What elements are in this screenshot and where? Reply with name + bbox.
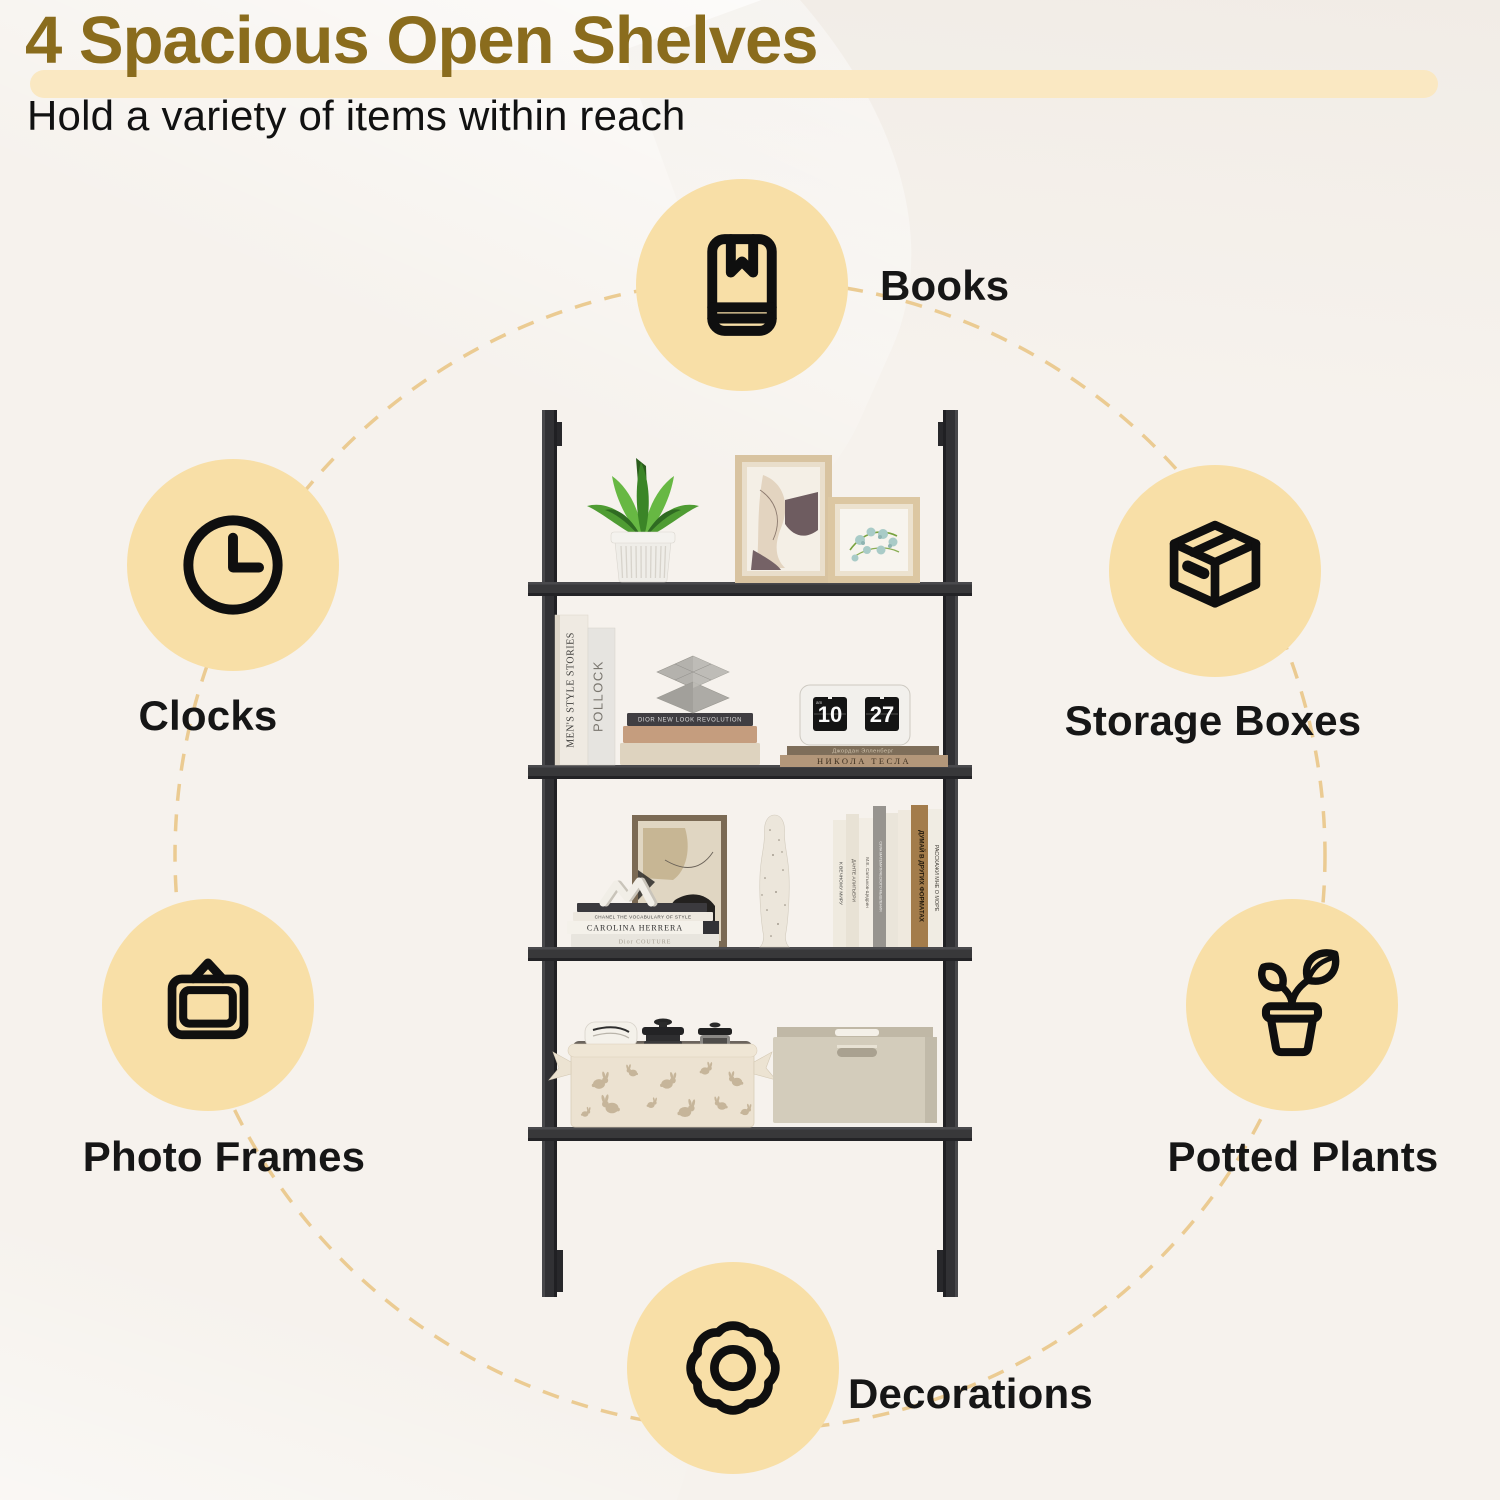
product-photo: MEN'S STYLE STORIES POLLOCK DIOR NEW LOO… [515, 400, 985, 1310]
feature-label-photo-frames: Photo Frames [83, 1133, 365, 1181]
potted-plant-icon [1230, 943, 1354, 1067]
potted-succulent [587, 458, 699, 582]
tier2-books: MEN'S STYLE STORIES POLLOCK DIOR NEW LOO… [555, 615, 760, 765]
candlestick [760, 815, 789, 947]
feature-label-books: Books [880, 262, 1009, 310]
svg-text:27: 27 [870, 702, 894, 727]
feature-circle-books [636, 179, 848, 391]
svg-text:10: 10 [818, 702, 842, 727]
flower-icon [671, 1306, 795, 1430]
fabric-basket [549, 1019, 776, 1128]
photo-frame-icon [146, 943, 270, 1067]
svg-text:MEN'S STYLE STORIES: MEN'S STYLE STORIES [566, 632, 577, 748]
svg-text:НИКОЛА ТЕСЛА: НИКОЛА ТЕСЛА [817, 756, 911, 766]
feature-circle-photo-frames [102, 899, 314, 1111]
svg-text:К ВЕЧНОМУ МИРУ: К ВЕЧНОМУ МИРУ [838, 862, 844, 906]
feature-circle-decorations [627, 1262, 839, 1474]
geometric-vase [657, 656, 729, 713]
feature-circle-potted-plants [1186, 899, 1398, 1111]
picture-frames [735, 455, 920, 583]
feature-label-storage-boxes: Storage Boxes [1065, 697, 1362, 745]
clock-icon [171, 503, 295, 627]
svg-text:POLLOCK: POLLOCK [591, 660, 606, 732]
svg-text:Джордан Элленберг: Джордан Элленберг [832, 749, 893, 755]
svg-text:DIOR NEW LOOK REVOLUTION: DIOR NEW LOOK REVOLUTION [638, 718, 742, 724]
svg-text:РАССКАЖИ МНЕ О МОРЕ: РАССКАЖИ МНЕ О МОРЕ [933, 845, 939, 912]
page-subtitle: Hold a variety of items within reach [27, 92, 685, 140]
svg-text:Dior COUTURE: Dior COUTURE [619, 940, 672, 946]
page-title: 4 Spacious Open Shelves [25, 2, 817, 79]
infographic-canvas: 4 Spacious Open Shelves Hold a variety o… [0, 0, 1500, 1500]
svg-text:ДАНТЕ АЛИГЬЕРИ: ДАНТЕ АЛИГЬЕРИ [851, 859, 857, 902]
feature-label-potted-plants: Potted Plants [1168, 1133, 1439, 1181]
book-icon [680, 223, 804, 347]
flip-clock: am 10 27 [800, 685, 910, 745]
feature-circle-storage-boxes [1109, 465, 1321, 677]
svg-text:М.Е. Салтыков-Щедрин: М.Е. Салтыков-Щедрин [865, 857, 870, 908]
svg-text:CAROLINA HERRERA: CAROLINA HERRERA [587, 924, 683, 933]
storage-box-icon [1153, 509, 1277, 633]
svg-text:ДУМАЙ В ДРУГИХ ФОРМАТАХ: ДУМАЙ В ДРУГИХ ФОРМАТАХ [918, 830, 926, 923]
feature-circle-clocks [127, 459, 339, 671]
svg-text:СИЛА МАТЕМАТИЧЕСКОГО МЫШЛЕНИЯ: СИЛА МАТЕМАТИЧЕСКОГО МЫШЛЕНИЯ [879, 841, 883, 912]
tier3-book-row: К ВЕЧНОМУ МИРУ ДАНТЕ АЛИГЬЕРИ М.Е. Салты… [833, 805, 942, 947]
feature-label-clocks: Clocks [139, 692, 278, 740]
svg-text:CHANEL THE VOCABULARY OF STYLE: CHANEL THE VOCABULARY OF STYLE [595, 915, 692, 920]
clock-books: Джордан Элленберг НИКОЛА ТЕСЛА [780, 746, 948, 767]
feature-label-decorations: Decorations [848, 1370, 1093, 1418]
storage-bin [773, 1027, 937, 1123]
